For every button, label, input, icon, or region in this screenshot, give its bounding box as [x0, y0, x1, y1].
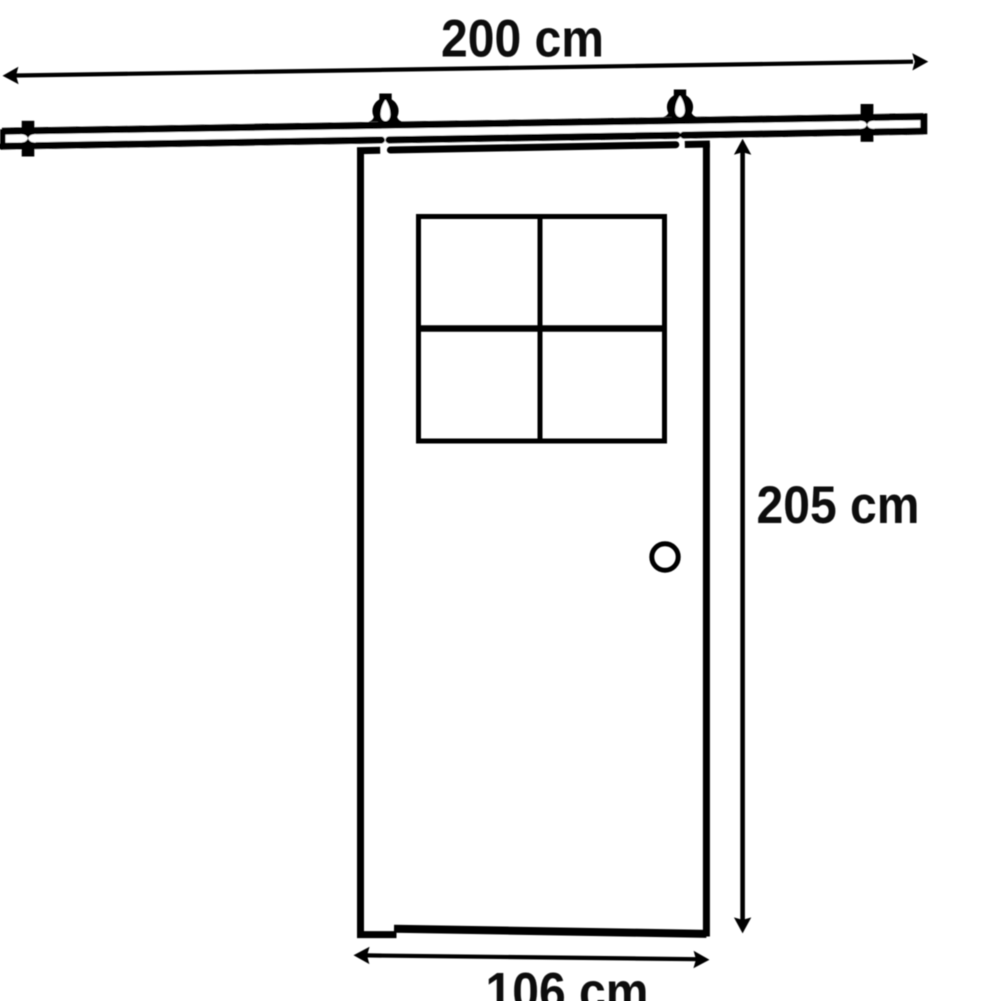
svg-text:200 cm: 200 cm [441, 10, 604, 69]
svg-text:106 cm: 106 cm [486, 963, 649, 1001]
svg-text:205 cm: 205 cm [757, 476, 920, 535]
